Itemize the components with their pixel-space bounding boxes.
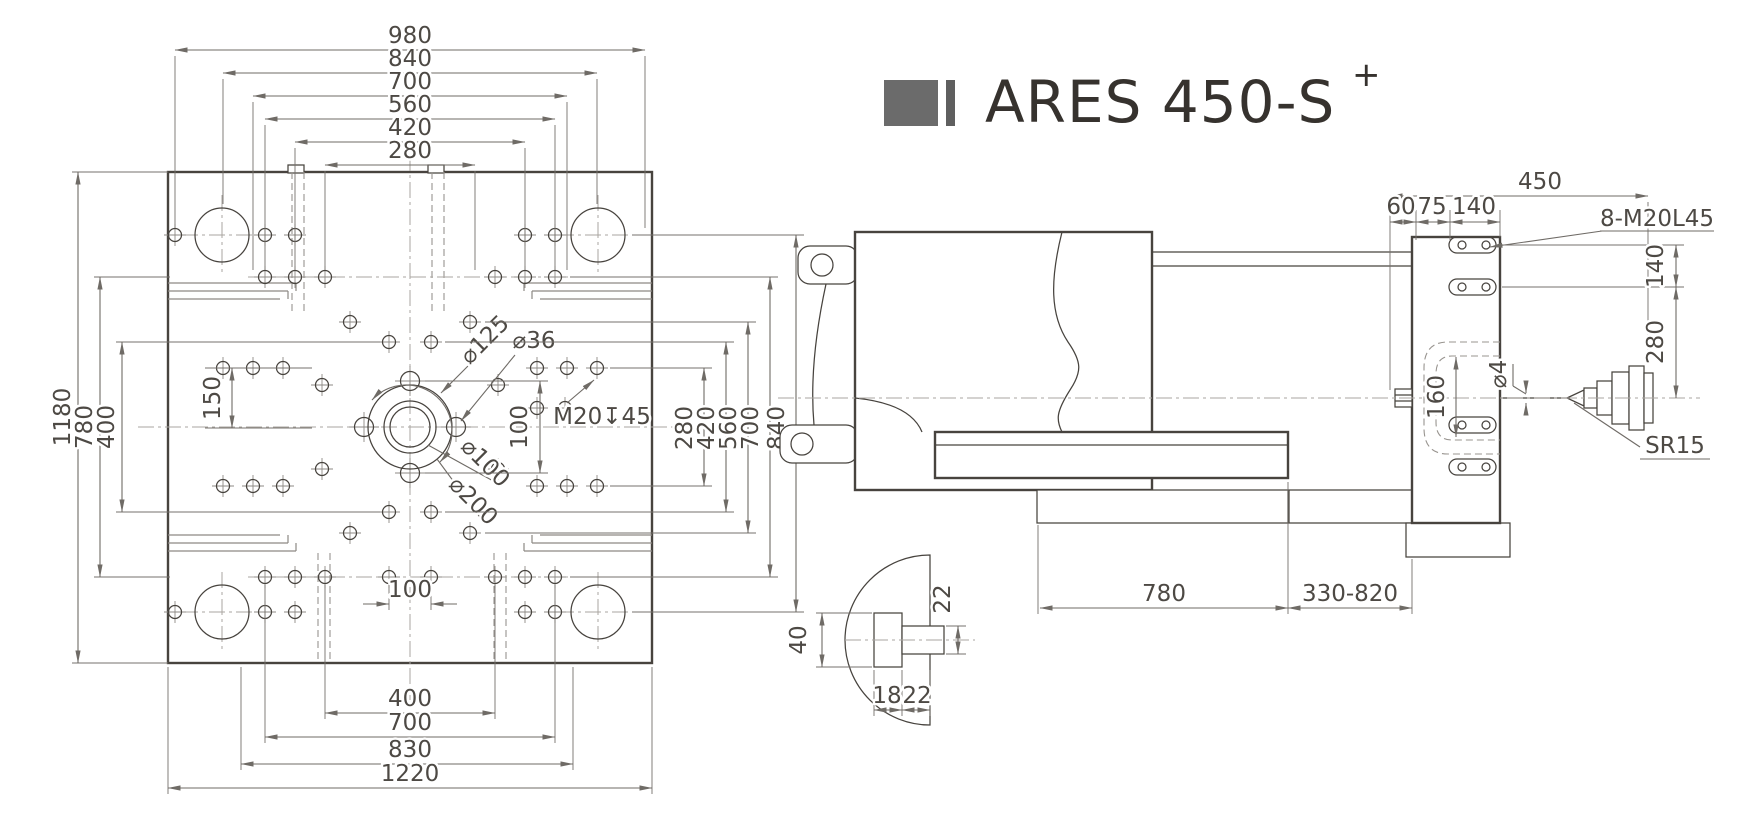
logo-mark bbox=[884, 80, 938, 126]
dim-right-700: 700 bbox=[738, 406, 764, 450]
model-title-superscript: + bbox=[1352, 55, 1381, 95]
technical-drawing: ARES 450-S + bbox=[0, 0, 1750, 824]
logo-bar bbox=[946, 80, 955, 126]
dim-bottom-1220: 1220 bbox=[381, 761, 440, 787]
clamp-profile-line bbox=[813, 284, 826, 425]
machine-bed-left bbox=[1037, 490, 1288, 523]
dim-hole-pitch: 100 bbox=[507, 405, 533, 449]
dim-bottom-400: 400 bbox=[388, 686, 432, 712]
label-tapped-holes: 8-M20L45 bbox=[1600, 206, 1714, 232]
dim-pilot-hole: ⌀36 bbox=[512, 328, 555, 354]
dim-detail-22-channel: 22 bbox=[930, 584, 956, 613]
label-nozzle-radius: SR15 bbox=[1645, 433, 1705, 459]
dim-side-140-offset: 140 bbox=[1452, 194, 1496, 220]
dim-side-280: 280 bbox=[1643, 320, 1669, 364]
dim-bottom-700: 700 bbox=[388, 710, 432, 736]
machine-bed-right bbox=[1289, 490, 1413, 523]
dim-detail-22: 22 bbox=[902, 683, 931, 709]
dim-detail-18: 18 bbox=[872, 683, 901, 709]
dim-bottom-830: 830 bbox=[388, 737, 432, 763]
machine-side-view: 450 60 75 140 8-M20L45 140 280 160 ⌀4 SR… bbox=[778, 169, 1714, 614]
platen-front-view: ⌀125 ⌀36 M20↧45 ⌀100 ⌀200 100 980 840 70… bbox=[50, 23, 804, 794]
title-block: ARES 450-S + bbox=[884, 55, 1381, 136]
drawing-sheet: ARES 450-S + bbox=[0, 0, 1750, 824]
locating-ring-detail: 40 22 18 22 bbox=[786, 555, 975, 725]
dim-side-60: 60 bbox=[1386, 194, 1415, 220]
dim-orifice: ⌀4 bbox=[1486, 360, 1512, 388]
dim-left-150: 150 bbox=[200, 376, 226, 420]
dim-side-140: 140 bbox=[1643, 244, 1669, 288]
dim-left-400: 400 bbox=[94, 405, 120, 449]
clamp-base-rail bbox=[935, 432, 1288, 478]
top-notch-left bbox=[288, 165, 304, 173]
top-notch-right bbox=[428, 165, 444, 173]
dim-top-280: 280 bbox=[388, 138, 432, 164]
dim-side-780: 780 bbox=[1142, 581, 1186, 607]
dim-bottom-100: 100 bbox=[388, 577, 432, 603]
dim-tapped-hole: M20↧45 bbox=[553, 404, 651, 430]
platen-plinth bbox=[1406, 523, 1510, 557]
dim-detail-40: 40 bbox=[786, 625, 812, 654]
dim-recess-160: 160 bbox=[1424, 375, 1450, 419]
dim-side-75: 75 bbox=[1417, 194, 1446, 220]
clamp-ear-bottom bbox=[780, 425, 858, 463]
dim-side-330-820: 330-820 bbox=[1302, 581, 1398, 607]
dim-side-450: 450 bbox=[1518, 169, 1562, 195]
clamp-ear-top bbox=[798, 246, 858, 284]
model-title: ARES 450-S bbox=[985, 68, 1335, 136]
